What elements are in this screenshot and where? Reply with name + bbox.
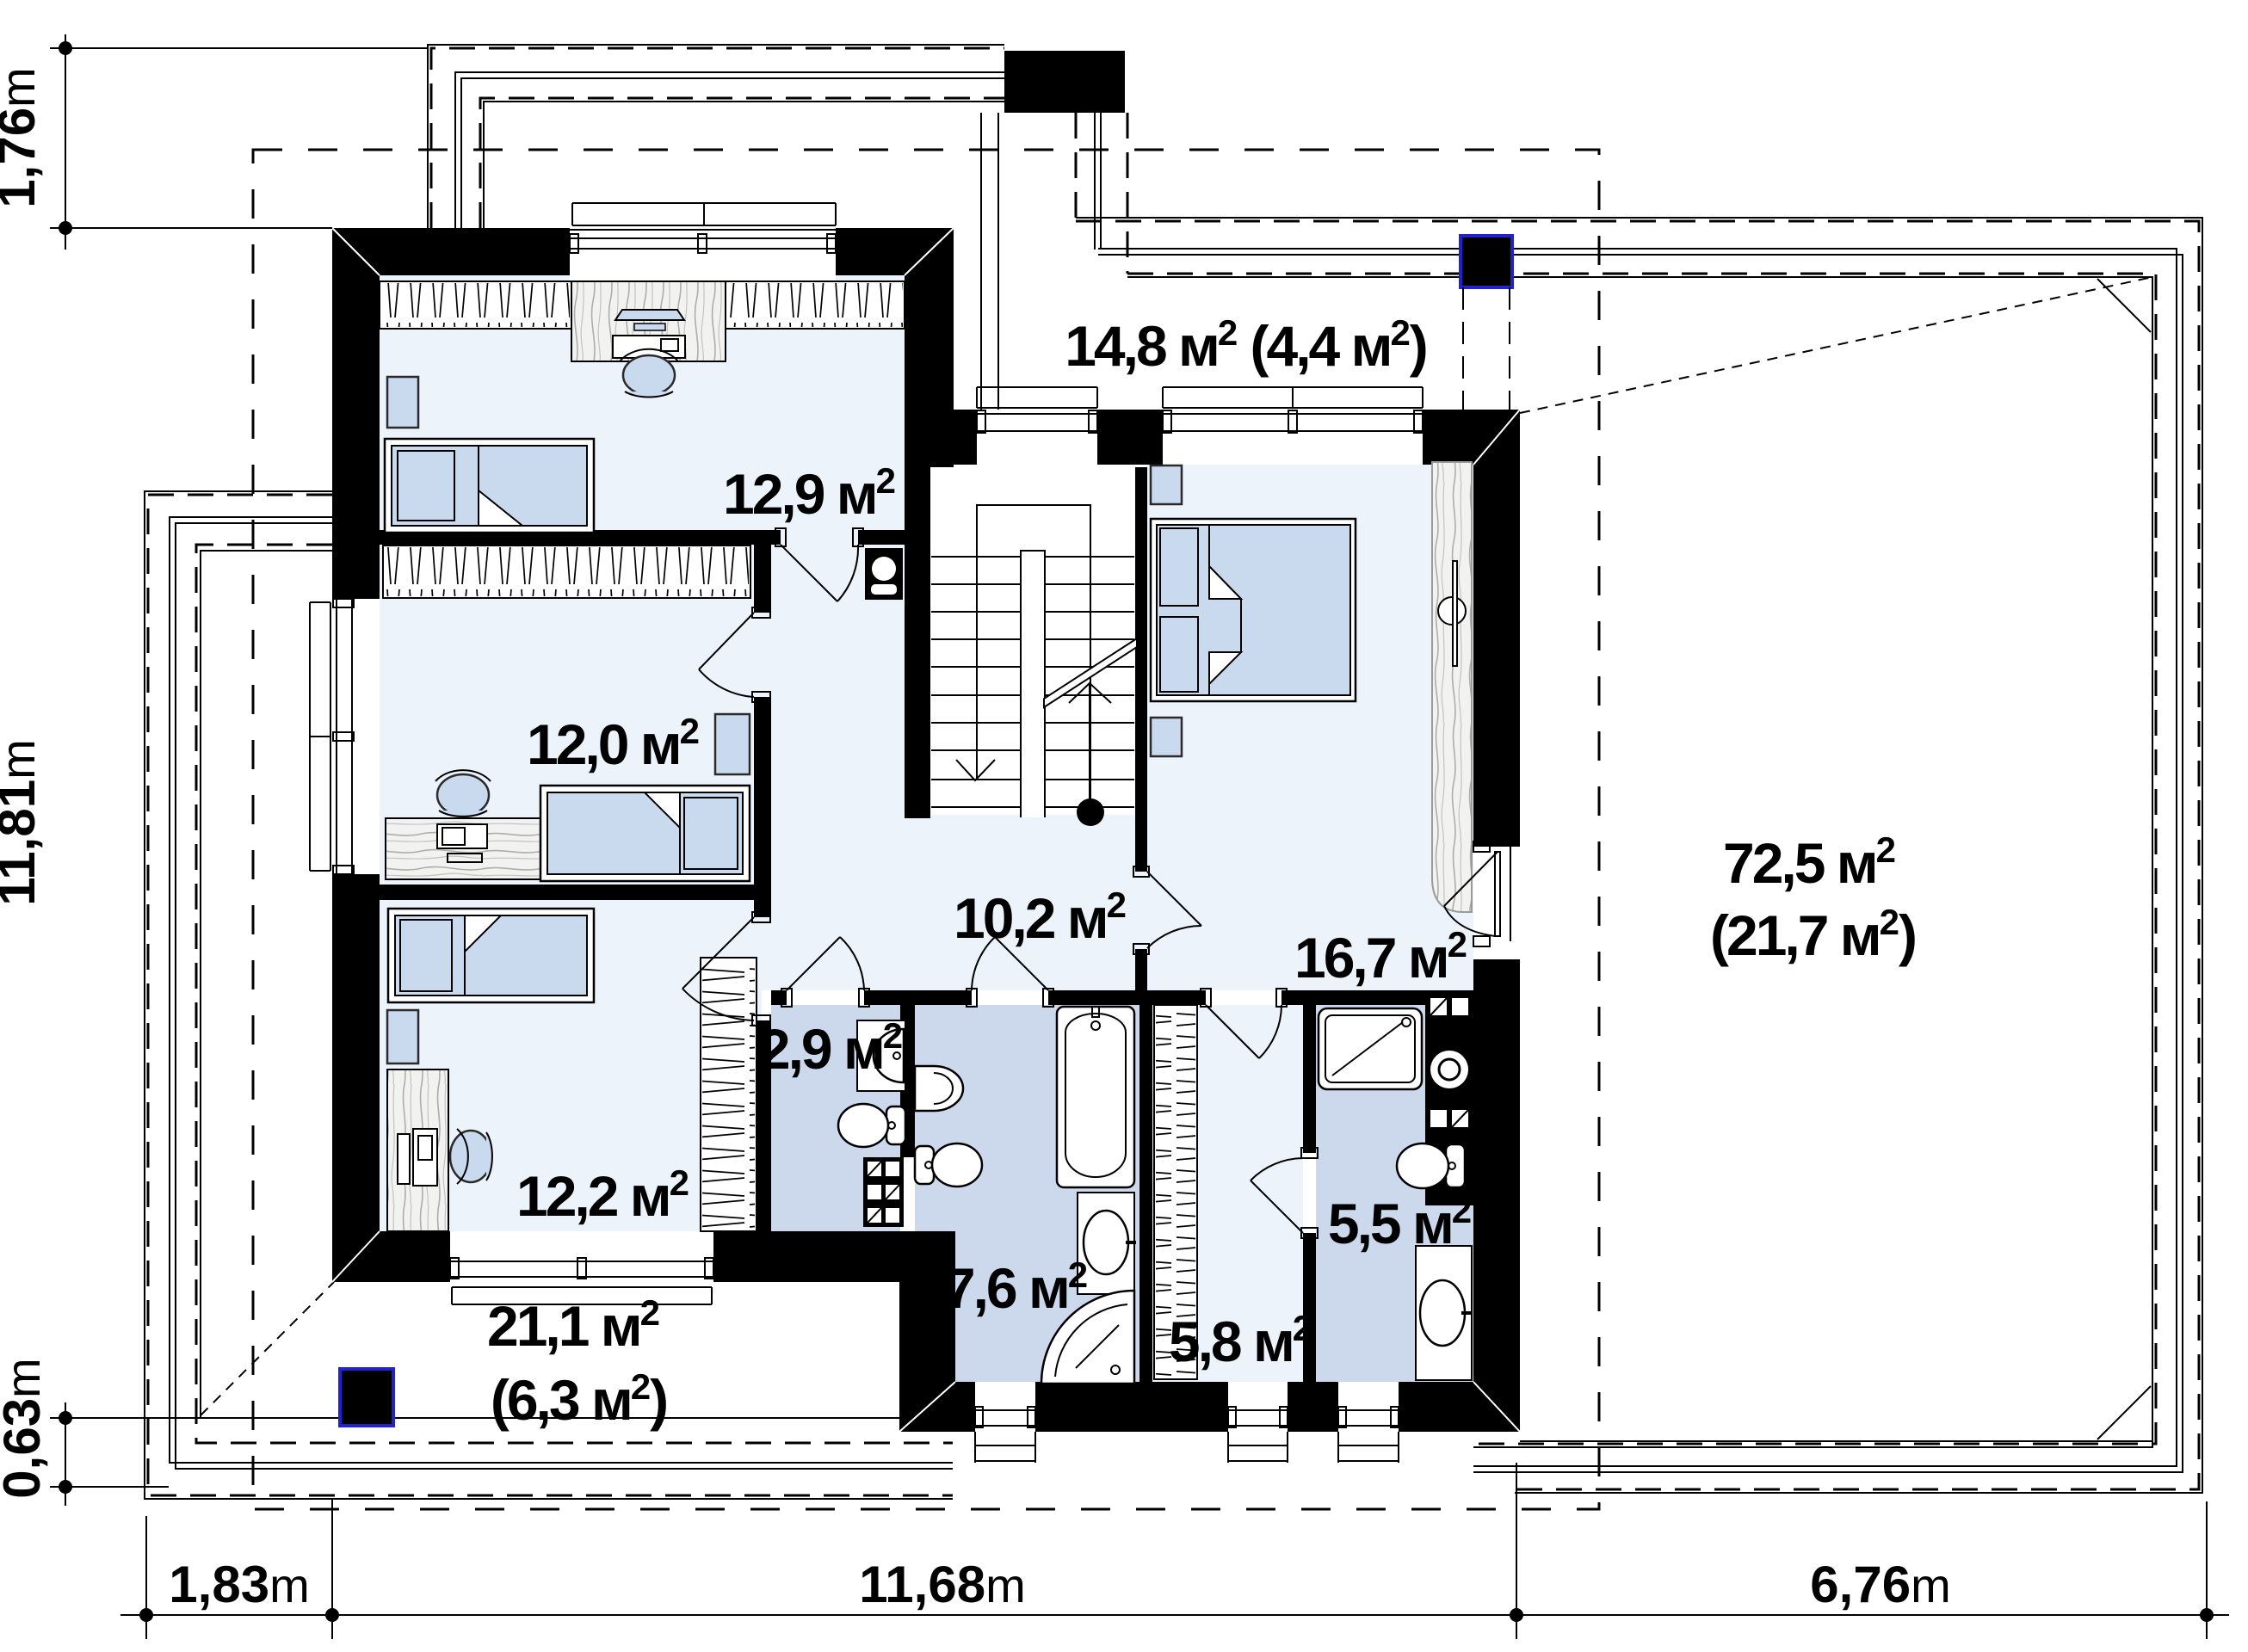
svg-text:12,0 м2: 12,0 м2: [527, 711, 699, 776]
svg-text:21,1 м2: 21,1 м2: [487, 1292, 659, 1358]
svg-text:12,2 м2: 12,2 м2: [516, 1162, 689, 1228]
svg-text:1,76m: 1,76m: [0, 67, 46, 207]
svg-text:72,5 м2: 72,5 м2: [1723, 829, 1895, 895]
svg-text:11,81m: 11,81m: [0, 739, 46, 906]
svg-text:5,5 м2: 5,5 м2: [1328, 1190, 1471, 1255]
svg-text:11,68m: 11,68m: [859, 1556, 1026, 1613]
svg-text:6,76m: 6,76m: [1810, 1556, 1950, 1613]
svg-text:2,9 м2: 2,9 м2: [759, 1015, 902, 1081]
svg-text:1,83m: 1,83m: [169, 1556, 309, 1613]
svg-text:10,2 м2: 10,2 м2: [954, 885, 1126, 950]
svg-text:5,8 м2: 5,8 м2: [1169, 1308, 1312, 1373]
svg-text:14,8 м2 (4,4 м2): 14,8 м2 (4,4 м2): [1065, 312, 1426, 378]
svg-text:7,6 м2: 7,6 м2: [944, 1254, 1087, 1320]
svg-text:0,63m: 0,63m: [0, 1358, 51, 1498]
svg-text:16,7 м2: 16,7 м2: [1294, 924, 1467, 989]
svg-text:12,9 м2: 12,9 м2: [723, 460, 895, 526]
